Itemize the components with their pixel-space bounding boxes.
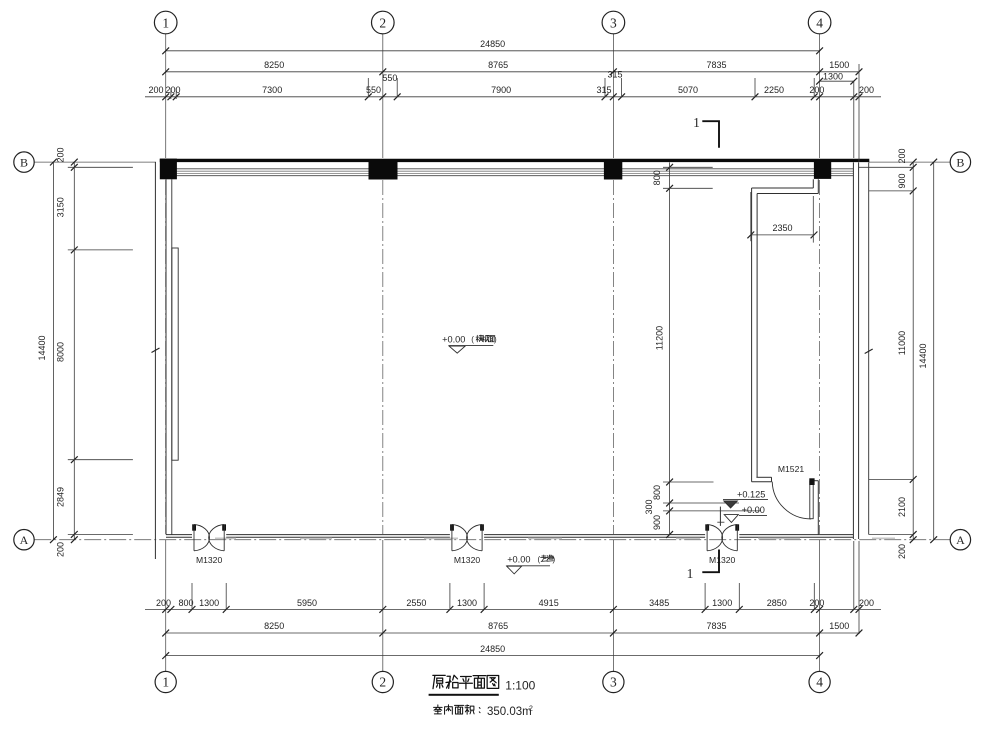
svg-text:24850: 24850 (480, 39, 505, 49)
svg-text:3: 3 (610, 675, 617, 690)
svg-text:200: 200 (897, 148, 907, 163)
svg-text:+0.00: +0.00 (442, 334, 465, 344)
svg-text:8250: 8250 (264, 621, 284, 631)
svg-text:7835: 7835 (706, 60, 726, 70)
svg-text:300: 300 (644, 499, 654, 514)
svg-text:200: 200 (809, 85, 824, 95)
svg-text:900: 900 (652, 515, 662, 530)
svg-text:8000: 8000 (56, 342, 66, 362)
svg-text:1: 1 (693, 115, 700, 130)
svg-text:24850: 24850 (480, 644, 505, 654)
svg-text:M1320: M1320 (454, 555, 480, 565)
svg-text:1500: 1500 (829, 60, 849, 70)
svg-text:2100: 2100 (897, 497, 907, 517)
svg-text:+0.00: +0.00 (742, 505, 765, 515)
svg-text:800: 800 (178, 598, 193, 608)
svg-text:B: B (956, 155, 964, 169)
svg-text:A: A (20, 533, 29, 547)
svg-text:2: 2 (379, 675, 386, 690)
svg-text:7900: 7900 (491, 85, 511, 95)
svg-text:1300: 1300 (199, 598, 219, 608)
svg-text:1: 1 (162, 15, 169, 30)
svg-text:(: ( (538, 555, 541, 564)
svg-text:M1320: M1320 (709, 555, 735, 565)
svg-text:2250: 2250 (764, 85, 784, 95)
svg-text:M1521: M1521 (778, 464, 804, 474)
svg-text:4: 4 (816, 15, 823, 30)
svg-text:200: 200 (56, 542, 66, 557)
svg-text:3485: 3485 (649, 598, 669, 608)
svg-text:800: 800 (652, 170, 662, 185)
svg-text:200: 200 (897, 544, 907, 559)
svg-text:+0.125: +0.125 (737, 490, 765, 500)
svg-text:200: 200 (859, 598, 874, 608)
svg-text:11200: 11200 (655, 326, 665, 350)
svg-text:800: 800 (652, 485, 662, 500)
svg-text:1300: 1300 (457, 598, 477, 608)
svg-text:): ) (553, 555, 556, 564)
svg-text:200: 200 (148, 85, 163, 95)
svg-text:11000: 11000 (897, 331, 907, 355)
svg-text:315: 315 (596, 85, 611, 95)
svg-text:14400: 14400 (37, 335, 47, 360)
svg-text:550: 550 (382, 73, 397, 83)
svg-text:1300: 1300 (823, 72, 843, 82)
svg-text:8765: 8765 (488, 621, 508, 631)
svg-text:315: 315 (607, 70, 622, 80)
svg-text:4915: 4915 (539, 598, 559, 608)
svg-text:2849: 2849 (56, 487, 66, 507)
svg-text:1:100: 1:100 (505, 679, 535, 693)
svg-text:8765: 8765 (488, 60, 508, 70)
svg-text:200: 200 (809, 598, 824, 608)
svg-text:2550: 2550 (406, 598, 426, 608)
svg-text:350.03m: 350.03m (487, 706, 532, 718)
svg-text:3150: 3150 (56, 197, 66, 217)
svg-text:900: 900 (897, 173, 907, 188)
svg-text:(: ( (471, 335, 474, 344)
svg-text:M1320: M1320 (196, 555, 222, 565)
svg-text:8250: 8250 (264, 60, 284, 70)
svg-text:1300: 1300 (712, 598, 732, 608)
svg-text:+0.00: +0.00 (507, 554, 530, 564)
svg-text:7300: 7300 (262, 85, 282, 95)
svg-text:1: 1 (687, 566, 694, 581)
svg-text:200: 200 (165, 85, 180, 95)
svg-text:4: 4 (816, 675, 823, 690)
svg-text:5950: 5950 (297, 598, 317, 608)
svg-text:2: 2 (379, 15, 386, 30)
svg-text:200: 200 (56, 147, 66, 162)
svg-text:3: 3 (610, 15, 617, 30)
svg-text:): ) (494, 335, 497, 344)
svg-text:14400: 14400 (918, 343, 928, 368)
svg-text:2850: 2850 (767, 598, 787, 608)
svg-text:2: 2 (529, 706, 533, 713)
svg-text:5070: 5070 (678, 85, 698, 95)
svg-text:1: 1 (162, 675, 169, 690)
svg-text:1500: 1500 (829, 621, 849, 631)
svg-text:B: B (20, 155, 28, 169)
svg-text:7835: 7835 (706, 621, 726, 631)
svg-text:2350: 2350 (772, 223, 792, 233)
svg-text:A: A (956, 533, 965, 547)
svg-text:200: 200 (859, 85, 874, 95)
svg-text:200: 200 (156, 598, 171, 608)
